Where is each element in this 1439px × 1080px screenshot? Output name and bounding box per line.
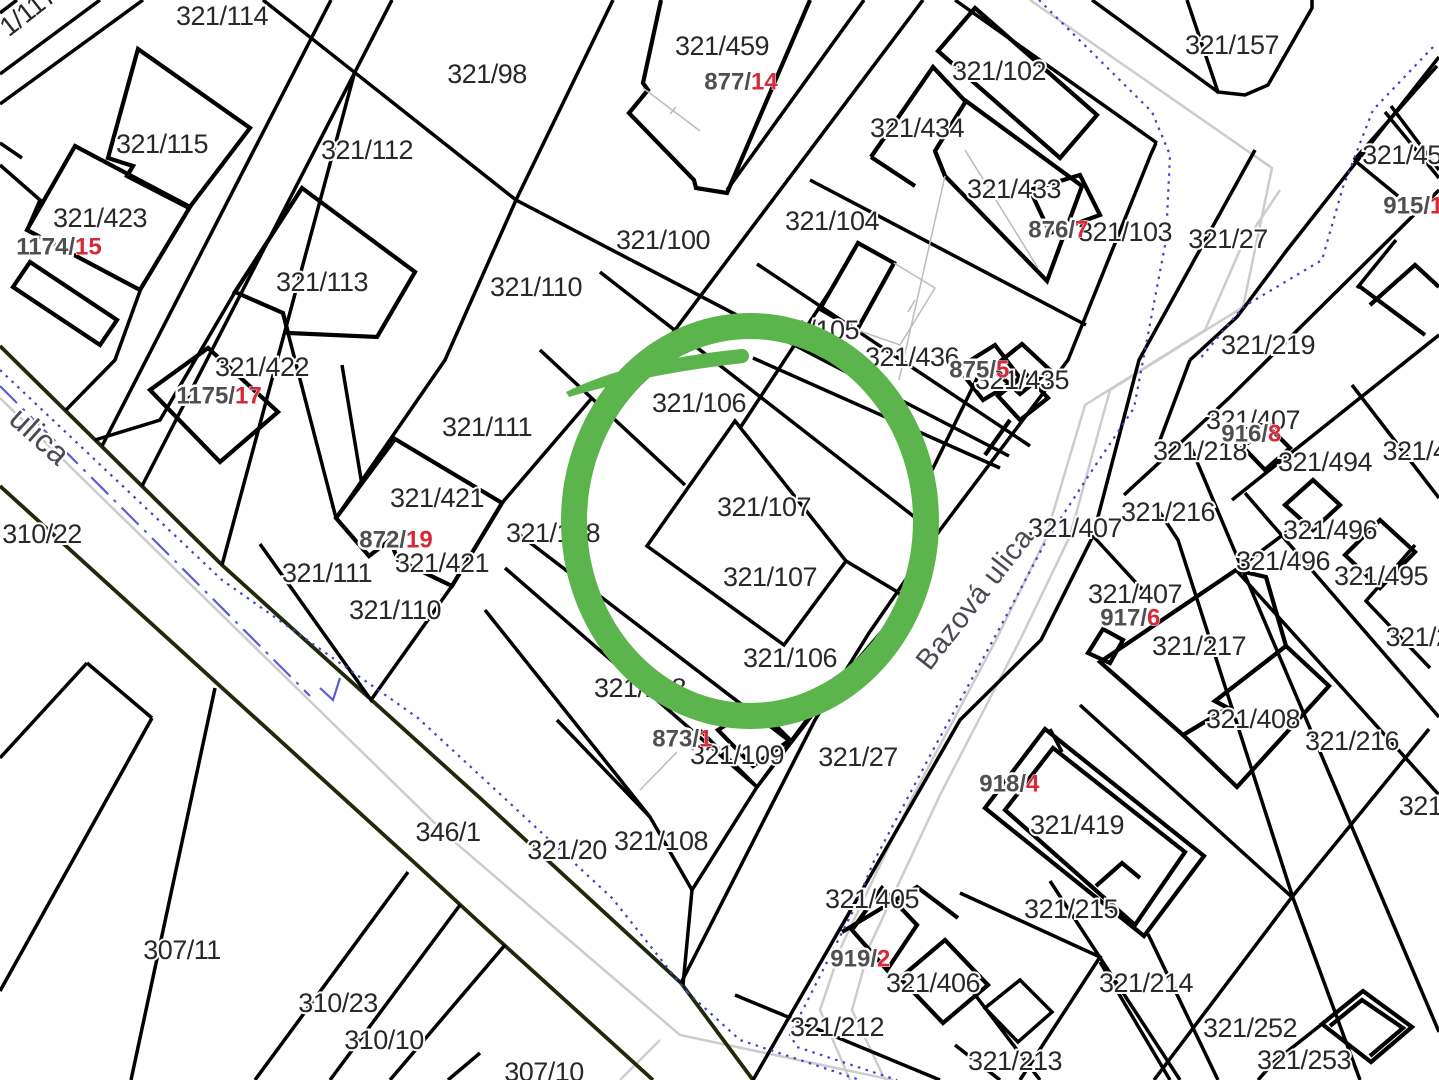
svg-text:321/103: 321/103 [1078,217,1172,247]
svg-text:321/212: 321/212 [790,1012,884,1042]
svg-text:321/106: 321/106 [743,643,837,673]
svg-text:17: 17 [235,383,262,410]
svg-text:321/108: 321/108 [614,826,708,856]
svg-text:6: 6 [1147,605,1160,632]
svg-text:321/406: 321/406 [886,968,980,998]
svg-text:321/408: 321/408 [1206,704,1300,734]
svg-text:7: 7 [1075,217,1088,244]
svg-text:321/217: 321/217 [1152,631,1246,661]
svg-text:321/106: 321/106 [652,388,746,418]
svg-text:875/: 875/ [949,357,996,384]
svg-text:8: 8 [1268,421,1281,448]
svg-text:15: 15 [75,234,102,261]
svg-text:321/214: 321/214 [1099,968,1194,998]
svg-text:321/422: 321/422 [215,352,309,382]
svg-text:321/253: 321/253 [1257,1045,1351,1075]
svg-text:321/4: 321/4 [1382,436,1439,466]
svg-text:321/434: 321/434 [870,113,965,143]
svg-text:918/: 918/ [979,771,1026,798]
svg-text:1175/: 1175/ [176,383,235,410]
svg-text:321/115: 321/115 [116,129,208,159]
svg-text:321/104: 321/104 [785,206,880,236]
svg-text:321/433: 321/433 [967,174,1061,204]
svg-text:321/102: 321/102 [952,56,1046,86]
svg-text:321/107: 321/107 [723,562,817,592]
svg-text:917/: 917/ [1100,605,1147,632]
svg-text:321/111: 321/111 [442,412,532,442]
svg-text:321/419: 321/419 [1030,810,1124,840]
svg-text:321/100: 321/100 [616,225,710,255]
svg-text:321/98: 321/98 [447,59,527,89]
svg-text:2: 2 [877,946,890,973]
svg-text:877/: 877/ [704,69,751,96]
svg-text:321/215: 321/215 [1024,894,1118,924]
svg-text:321/496: 321/496 [1283,515,1377,545]
svg-text:321/459: 321/459 [675,31,769,61]
svg-text:876/: 876/ [1028,217,1075,244]
svg-text:321/252: 321/252 [1203,1013,1297,1043]
svg-text:321/45: 321/45 [1362,140,1439,170]
svg-text:321/421: 321/421 [390,483,484,513]
svg-text:321/27: 321/27 [1188,224,1268,254]
svg-text:310/10: 310/10 [344,1025,424,1055]
svg-text:321/20: 321/20 [527,835,607,865]
svg-text:321/27: 321/27 [818,742,898,772]
svg-text:307/10: 307/10 [504,1057,584,1080]
svg-text:321/113: 321/113 [276,267,368,297]
svg-text:307/11: 307/11 [143,935,221,965]
svg-text:321/496: 321/496 [1236,546,1330,576]
svg-text:346/1: 346/1 [415,817,480,847]
svg-text:321/157: 321/157 [1185,30,1279,60]
svg-text:321/112: 321/112 [321,135,413,165]
svg-text:872/: 872/ [359,527,406,554]
svg-text:310/22: 310/22 [2,519,82,549]
svg-text:321/111: 321/111 [282,558,372,588]
svg-text:321/405: 321/405 [825,884,919,914]
svg-text:919/: 919/ [830,946,877,973]
svg-text:1: 1 [699,726,712,753]
svg-text:4: 4 [1026,771,1040,798]
svg-text:310/23: 310/23 [298,988,378,1018]
svg-text:915/: 915/ [1383,193,1430,220]
svg-text:321/: 321/ [1399,791,1439,821]
svg-text:321/107: 321/107 [717,492,811,522]
svg-text:5: 5 [996,357,1009,384]
svg-text:873/: 873/ [652,726,699,753]
svg-text:321/216: 321/216 [1305,726,1399,756]
svg-text:321/423: 321/423 [53,203,147,233]
svg-text:1174/: 1174/ [16,234,75,261]
svg-text:321/216: 321/216 [1121,497,1215,527]
svg-text:321/495: 321/495 [1334,561,1428,591]
svg-text:321/219: 321/219 [1221,330,1315,360]
svg-text:321/494: 321/494 [1278,447,1373,477]
svg-text:321/2: 321/2 [1385,622,1439,652]
svg-text:321/436: 321/436 [865,342,959,372]
svg-text:321/213: 321/213 [968,1046,1062,1076]
svg-text:14: 14 [751,69,778,96]
svg-text:1: 1 [1430,193,1439,220]
svg-text:321/110: 321/110 [349,595,441,625]
svg-text:19: 19 [406,527,433,554]
svg-text:321/407: 321/407 [1028,513,1122,543]
svg-text:321/114: 321/114 [176,1,269,31]
svg-text:916/: 916/ [1221,421,1268,448]
svg-text:321/110: 321/110 [490,272,582,302]
